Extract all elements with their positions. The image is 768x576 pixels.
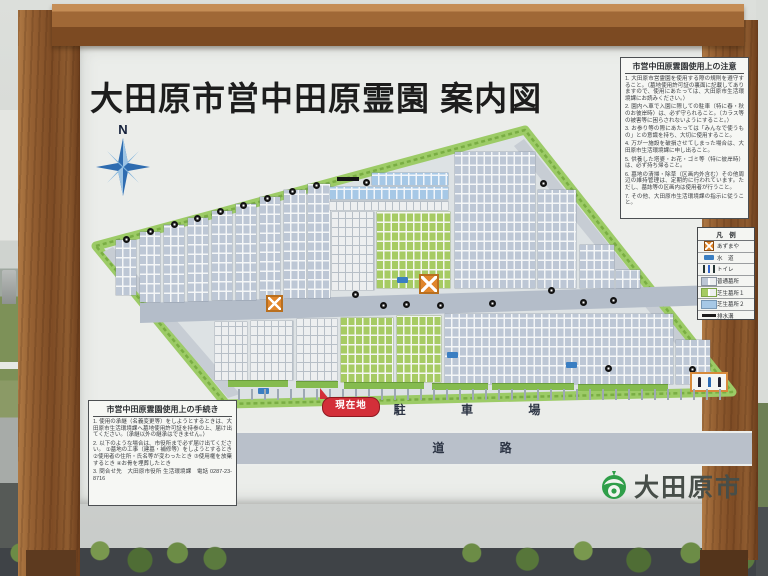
water-legend-swatch-icon xyxy=(700,255,717,260)
note-item: 6. 墓地の清掃・除草（区画内外含む）その他周辺の維持管理は、定期的に行われてい… xyxy=(625,172,744,192)
grave-plot-block xyxy=(580,245,614,288)
hedge-strip xyxy=(296,381,338,388)
legend-box: 凡 例 あずまや水 道トイレ普通墓所芝生墓所１芝生墓所２排水溝 xyxy=(697,227,755,320)
legend-row: 芝生墓所２ xyxy=(698,299,754,311)
grave-plot-block xyxy=(215,322,247,380)
azumaya-pavilion xyxy=(266,295,283,312)
path-number-marker xyxy=(171,221,178,228)
path-number-marker xyxy=(403,301,410,308)
water-tap xyxy=(566,362,577,368)
note-item: 2. 以下のような場合は、市役所まで必ず届け出てください。 ①墓地の工事（建墓・… xyxy=(93,441,232,467)
grave-plot-block xyxy=(116,240,136,295)
gray-legend-swatch-icon xyxy=(700,277,717,286)
path-number-marker xyxy=(123,236,130,243)
legend-rows: あずまや水 道トイレ普通墓所芝生墓所１芝生墓所２排水溝 xyxy=(698,241,754,321)
path-number-marker xyxy=(240,202,247,209)
azumaya-pavilion xyxy=(419,274,439,294)
azumaya-legend-swatch-icon xyxy=(700,241,717,251)
grave-plot-block xyxy=(308,184,330,298)
grave-plot-block xyxy=(330,201,448,210)
grave-plot-block xyxy=(140,232,160,302)
grave-plot-block xyxy=(188,218,208,301)
procedure-items: 1. 使用の承継（名義変更等）をしようとするときは、大田原市生活環境課へ墓地使用… xyxy=(93,419,232,482)
legend-row: トイレ xyxy=(698,264,754,276)
grave-plot-block xyxy=(284,190,306,298)
path-number-marker xyxy=(313,182,320,189)
usage-notice-box: 市営中田原霊園使用上の注意 1. 大田原市営霊園を使用する際の規則を遵守すること… xyxy=(620,57,749,219)
parking-stall-ticks xyxy=(238,389,730,400)
hedge-strip xyxy=(228,380,288,387)
compass-star-icon xyxy=(94,136,152,200)
path-number-marker xyxy=(580,299,587,306)
path-number-marker xyxy=(264,195,271,202)
note-item: 7. その他、大田原市生活環境課の指示に従うこと。 xyxy=(625,194,744,207)
grave-plot-block xyxy=(445,314,673,384)
grave-plot-block xyxy=(372,173,448,185)
grave-plot-block xyxy=(251,321,293,380)
usage-notice-items: 1. 大田原市営霊園を使用する際の規則を遵守すること。（墓地使用許可証の裏面に記… xyxy=(625,76,744,207)
legend-row: 芝生墓所１ xyxy=(698,287,754,299)
compass-north-label: N xyxy=(94,122,152,137)
path-number-marker xyxy=(194,215,201,222)
note-item: 5. 供養した塔婆・お花・ゴミ等（特に彼岸時）は、必ず持ち帰ること。 xyxy=(625,157,744,170)
note-item: 3. 問合せ先 大田原市役所 生活環境課 電話 0287-23-8716 xyxy=(93,469,232,482)
legend-row: あずまや xyxy=(698,241,754,253)
grave-plot-block xyxy=(377,212,450,288)
grave-plot-block xyxy=(538,190,576,288)
legend-label: あずまや xyxy=(717,242,739,250)
path-number-marker xyxy=(363,179,370,186)
hedge-strip xyxy=(344,382,424,389)
current-location-badge: 現在地 xyxy=(322,397,380,417)
grave-plot-block xyxy=(164,225,184,302)
path-number-marker xyxy=(380,302,387,309)
grave-plot-block xyxy=(332,212,374,290)
legend-row: 排水溝 xyxy=(698,311,754,322)
path-number-marker xyxy=(610,297,617,304)
procedure-title: 市営中田原霊園使用上の手続き xyxy=(93,404,232,417)
path-number-marker xyxy=(489,300,496,307)
note-item: 4. 万が一施設を破損させてしまった場合は、大田原市生活環境課に申し出ること。 xyxy=(625,141,744,154)
note-item: 1. 大田原市営霊園を使用する際の規則を遵守すること。（墓地使用許可証の裏面に記… xyxy=(625,76,744,102)
city-logo: 大田原市 xyxy=(598,468,742,504)
note-item: 1. 使用の承継（名義変更等）をしようとするときは、大田原市生活環境課へ墓地使用… xyxy=(93,419,232,439)
path-number-marker xyxy=(605,365,612,372)
procedure-box: 市営中田原霊園使用上の手続き 1. 使用の承継（名義変更等）をしようとするときは… xyxy=(88,400,237,506)
path-number-marker xyxy=(548,287,555,294)
legend-label: 排水溝 xyxy=(717,312,734,320)
grave-plot-block xyxy=(616,270,640,288)
water-tap xyxy=(447,352,458,358)
path-number-marker xyxy=(147,228,154,235)
note-item: 2. 園内へ車で入園に際しての駐車（特に春・秋のお彼岸時）は、必ず守られること。… xyxy=(625,104,744,124)
grave-plot-block xyxy=(212,211,232,300)
water-tap xyxy=(397,277,408,283)
path-number-marker xyxy=(289,188,296,195)
path-number-marker xyxy=(437,302,444,309)
female-figure-icon xyxy=(718,377,721,387)
grave-plot-block xyxy=(236,204,256,300)
legend-label: 芝生墓所２ xyxy=(717,300,745,308)
path-number-marker xyxy=(217,208,224,215)
note-item: 3. お参り等の際にあたっては「みんなで使うもの」との意識を持ち、大切に使用する… xyxy=(625,126,744,139)
path-number-marker xyxy=(352,291,359,298)
legend-row: 普通墓所 xyxy=(698,276,754,288)
grave-plot-block xyxy=(397,316,441,382)
road-label: 道 路 xyxy=(218,433,752,464)
compass-rose: N xyxy=(94,122,152,202)
blue-legend-swatch-icon xyxy=(700,300,717,309)
path-number-marker xyxy=(540,180,547,187)
grave-plot-block xyxy=(260,197,280,299)
grave-plot-block xyxy=(455,152,535,288)
grave-plot-block xyxy=(297,319,337,380)
legend-row: 水 道 xyxy=(698,253,754,265)
legend-label: 芝生墓所１ xyxy=(717,289,745,297)
city-logo-text: 大田原市 xyxy=(634,468,742,504)
wheelchair-figure-icon xyxy=(708,377,711,387)
green-legend-swatch-icon xyxy=(700,288,717,297)
usage-notice-title: 市営中田原霊園使用上の注意 xyxy=(625,61,744,74)
legend-title: 凡 例 xyxy=(698,228,754,241)
road-band: 道 路 xyxy=(218,431,752,466)
legend-label: 水 道 xyxy=(717,254,734,262)
grave-plot-block xyxy=(341,318,393,382)
toilet-legend-swatch-icon xyxy=(700,265,717,273)
otawara-city-emblem-icon xyxy=(598,470,630,502)
drain-legend-swatch-icon xyxy=(700,314,717,317)
male-figure-icon xyxy=(698,377,701,387)
legend-label: 普通墓所 xyxy=(717,277,739,285)
legend-label: トイレ xyxy=(717,265,734,273)
grave-plot-block xyxy=(330,187,448,199)
map-scale-bar xyxy=(337,177,359,181)
